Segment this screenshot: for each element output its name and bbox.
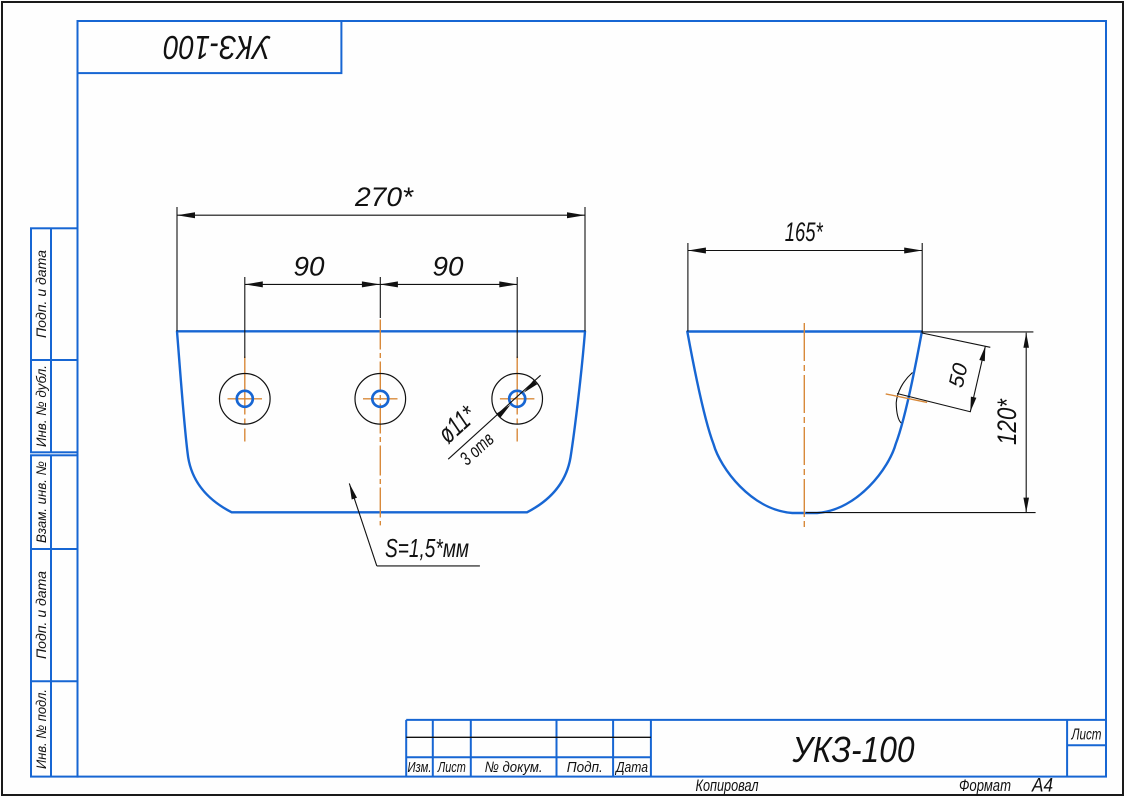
svg-text:УКЗ-100: УКЗ-100 bbox=[792, 729, 915, 770]
svg-text:А4: А4 bbox=[1031, 776, 1053, 797]
svg-text:Лист: Лист bbox=[1071, 727, 1102, 744]
svg-text:№ докум.: № докум. bbox=[485, 759, 543, 776]
svg-text:Инв. № дубл.: Инв. № дубл. bbox=[33, 365, 49, 447]
svg-text:90: 90 bbox=[433, 252, 464, 282]
svg-text:165*: 165* bbox=[785, 217, 824, 247]
svg-text:270*: 270* bbox=[354, 182, 415, 212]
svg-text:120*: 120* bbox=[992, 398, 1022, 445]
svg-text:Лист: Лист bbox=[437, 759, 466, 776]
svg-text:Изм.: Изм. bbox=[408, 759, 432, 776]
svg-text:Дата: Дата bbox=[614, 759, 648, 776]
svg-text:Копировал: Копировал bbox=[696, 776, 759, 795]
svg-text:Подп.: Подп. bbox=[567, 759, 603, 776]
svg-text:Подп. и дата: Подп. и дата bbox=[33, 571, 49, 659]
svg-text:УКЗ-100: УКЗ-100 bbox=[163, 29, 271, 66]
svg-text:Формат: Формат bbox=[959, 776, 1011, 795]
svg-text:S=1,5*мм: S=1,5*мм bbox=[385, 533, 469, 563]
svg-text:Подп. и дата: Подп. и дата bbox=[33, 250, 49, 338]
svg-text:Взам. инв. №: Взам. инв. № bbox=[33, 461, 49, 543]
svg-text:Инв. № подл.: Инв. № подл. bbox=[33, 689, 49, 769]
svg-text:90: 90 bbox=[294, 252, 325, 282]
